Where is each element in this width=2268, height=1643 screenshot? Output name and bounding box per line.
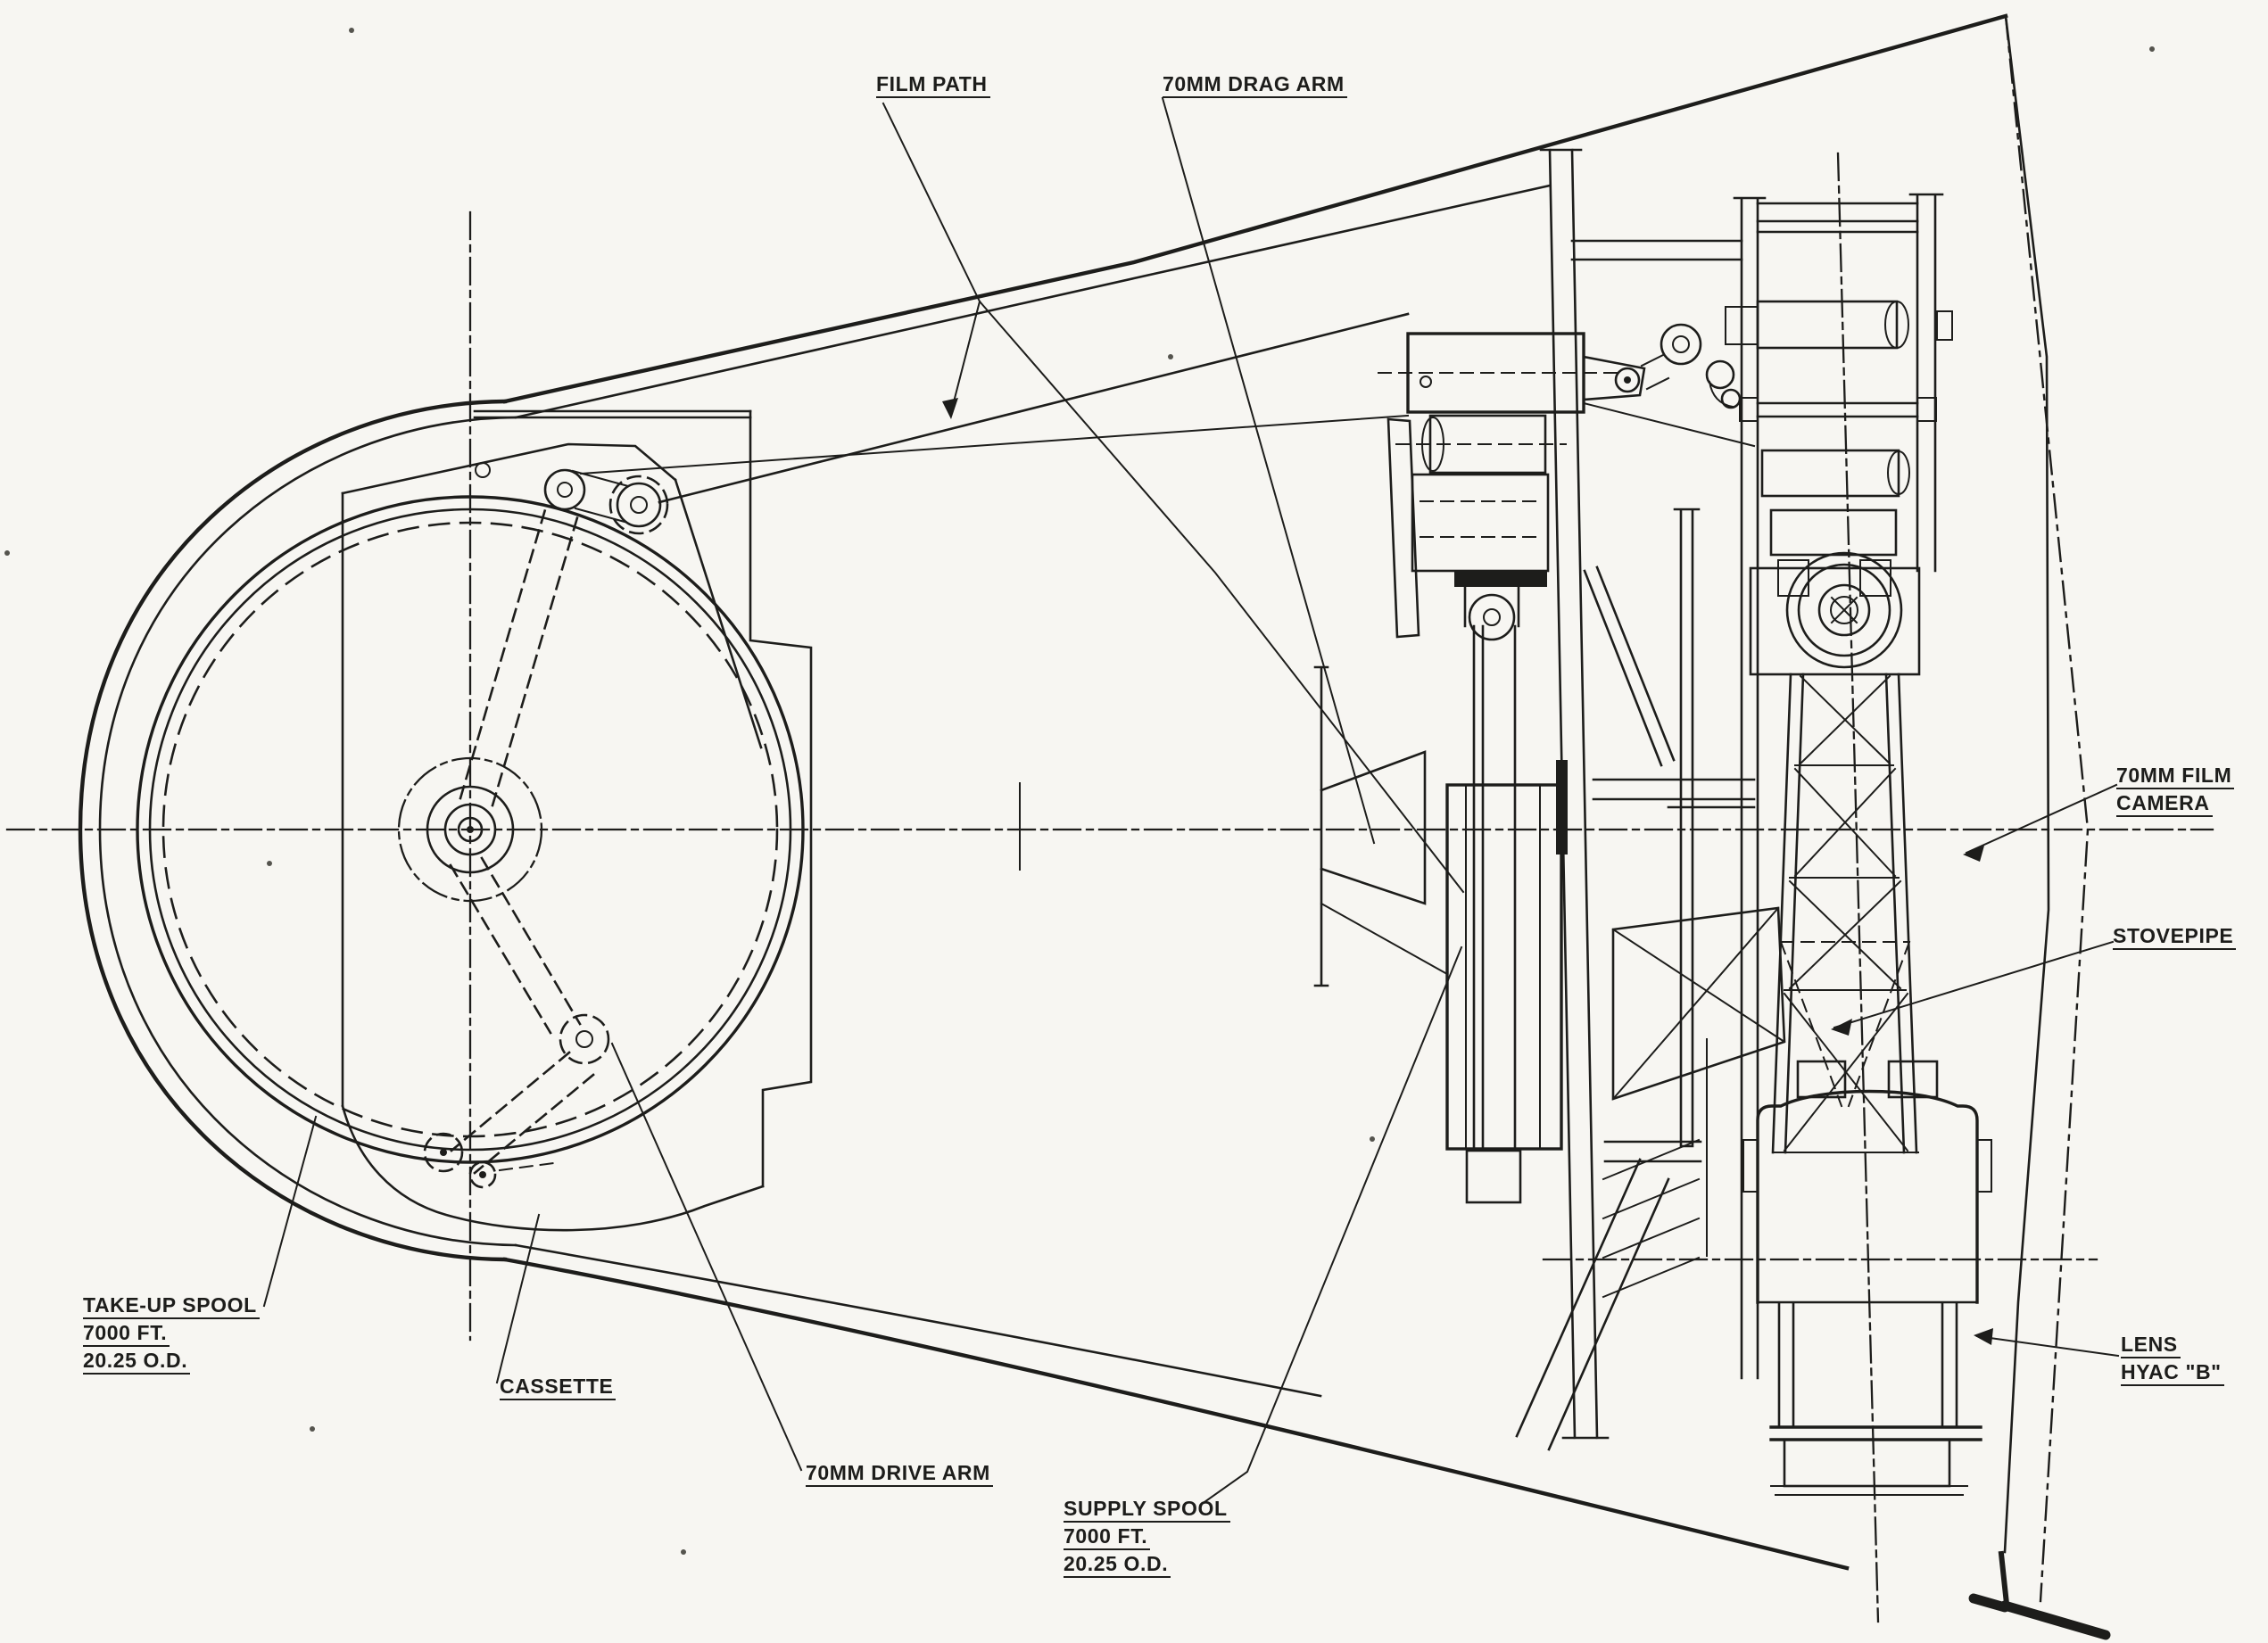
upper-cone-inner-skin — [516, 186, 1550, 417]
label-supply-spool: SUPPLY SPOOL 7000 FT. 20.25 O.D. — [1064, 1499, 1230, 1581]
roller-1-outboard — [1937, 311, 1952, 340]
lens-cell-body — [1758, 1092, 1977, 1303]
mid-pole — [1675, 509, 1699, 1146]
frame-top-beam — [1572, 241, 1742, 260]
cassette-bottom-edge — [343, 1106, 763, 1230]
label-text: 70MM DRIVE ARM — [806, 1463, 993, 1487]
upper-roller-a — [545, 470, 584, 509]
lens-side-tab-right — [1977, 1140, 1991, 1192]
label-take-up-spool: TAKE-UP SPOOL 7000 FT. 20.25 O.D. — [83, 1295, 260, 1378]
shaft-fitting-right — [1917, 398, 1936, 421]
hub-center — [467, 826, 474, 833]
film-path-arrow — [942, 398, 958, 419]
drag-arm-link-plate — [1584, 357, 1644, 400]
bracket-roller — [1469, 595, 1514, 640]
lens-leader — [1977, 1336, 2118, 1356]
drive-arm-forearm — [451, 1053, 593, 1173]
optical-horn — [1020, 667, 1447, 986]
frame-column-2 — [1734, 198, 1765, 1378]
lens-lower-block — [1784, 1440, 1949, 1486]
film-path-leader — [883, 103, 1463, 892]
label-lens-hyac-b: LENS HYAC "B" — [2121, 1334, 2224, 1390]
label-70mm-drag-arm: 70MM DRAG ARM — [1163, 74, 1347, 102]
lens-retainer-band — [1771, 1427, 1981, 1440]
lens-arrow — [1974, 1328, 1993, 1345]
clamp-bar — [1454, 572, 1547, 587]
drive-arm-leader — [612, 1044, 801, 1470]
mid-beams — [1593, 780, 1754, 807]
film-camera-arrow — [1963, 846, 1984, 862]
lens-bottom-lines — [1771, 1486, 1967, 1495]
lower-film-dash — [500, 1162, 560, 1170]
idler-roller — [1661, 325, 1701, 364]
film-camera-leader — [1966, 785, 2116, 853]
supply-housing-ribs — [1466, 785, 1540, 1149]
upper-roller-a-pin — [558, 483, 572, 497]
camera-axis-centerline — [1838, 153, 1878, 1622]
drag-arm-cylinder — [1474, 626, 1515, 1149]
lower-box-hidden-lines — [1420, 501, 1540, 537]
engineering-drawing-page: FILM PATH 70MM DRAG ARM 70MM FILM CAMERA… — [0, 0, 2268, 1643]
cylinder-foot — [1467, 1151, 1520, 1202]
drive-arm-upper — [460, 507, 578, 805]
supply-housing — [1447, 785, 1561, 1149]
side-plate — [1388, 419, 1419, 637]
label-text: TAKE-UP SPOOL — [83, 1295, 260, 1319]
vehicle-envelope — [80, 16, 2106, 1635]
label-text: 7000 FT. — [83, 1323, 170, 1347]
film-strand-to-rollers — [1584, 403, 1754, 446]
label-text: 20.25 O.D. — [1064, 1554, 1171, 1578]
aft-foot-mark-right — [2005, 1606, 2106, 1635]
horn-brace — [1321, 904, 1447, 974]
lens-barrel — [1758, 1302, 1977, 1425]
upper-roller-b-swing — [610, 476, 667, 533]
camera-frame — [1388, 150, 1942, 1438]
drag-arm-housing — [1408, 334, 1584, 412]
label-70mm-film-camera: 70MM FILM CAMERA — [2116, 765, 2234, 821]
label-text: CASSETTE — [500, 1376, 616, 1400]
lens-side-tab-left — [1743, 1140, 1758, 1192]
label-cassette: CASSETTE — [500, 1376, 616, 1404]
label-text: STOVEPIPE — [2113, 926, 2236, 950]
label-stovepipe: STOVEPIPE — [2113, 926, 2236, 954]
centerlines — [7, 16, 2213, 1622]
label-text: 20.25 O.D. — [83, 1350, 190, 1375]
plate-top-edge — [475, 411, 750, 417]
bracket-roller-pin — [1484, 609, 1500, 625]
roller-1 — [1758, 301, 1897, 348]
camera-top-plate — [1758, 203, 1917, 232]
link-bars — [1642, 355, 1668, 389]
drag-arm-pivot-hole — [1420, 376, 1431, 387]
drag-arm-lower-box — [1412, 475, 1548, 571]
camera-cross-section-diagram — [0, 0, 2268, 1643]
label-film-path: FILM PATH — [876, 74, 990, 102]
roller-shaft-beam — [1758, 403, 1917, 417]
label-text: 70MM DRAG ARM — [1163, 74, 1347, 98]
cassette-leader — [497, 1215, 539, 1383]
idler-roller-pin — [1673, 336, 1689, 352]
drive-arm-elbow-pin — [576, 1031, 592, 1047]
label-text: LENS — [2121, 1334, 2181, 1358]
upper-roller-b — [617, 483, 660, 526]
scan-specks — [4, 28, 2155, 1555]
roller-2 — [1762, 450, 1899, 496]
drive-arm-elbow — [560, 1015, 608, 1063]
label-text: HYAC "B" — [2121, 1362, 2224, 1386]
lens-assembly — [1743, 1061, 1991, 1495]
label-text: CAMERA — [2116, 793, 2213, 817]
label-text: FILM PATH — [876, 74, 990, 98]
slant-brace — [1585, 567, 1674, 765]
aft-trajectory-line — [2006, 16, 2088, 1601]
drive-wheel-spokes — [1832, 598, 1857, 623]
frame-column-3 — [1910, 194, 1942, 571]
supply-spool-housing — [1447, 760, 1568, 1149]
upper-roller-b-pin — [631, 497, 647, 513]
leader-lines — [264, 98, 2118, 1502]
lower-roller-b-pin — [479, 1171, 486, 1178]
frame-column-1 — [1541, 150, 1608, 1438]
supply-housing-seal — [1556, 760, 1568, 855]
film-strand-secondary — [581, 416, 1408, 474]
stovepipe-leader — [1834, 942, 2113, 1028]
lower-roller-a-pin — [440, 1149, 447, 1156]
label-text: 7000 FT. — [1064, 1526, 1150, 1550]
label-text: 70MM FILM — [2116, 765, 2234, 789]
lower-cone-inner-skin — [516, 1245, 1320, 1396]
aft-foot-stem — [2001, 1554, 2007, 1604]
aft-skin — [2005, 16, 2049, 1552]
roller-3 — [1771, 510, 1896, 555]
label-70mm-drive-arm: 70MM DRIVE ARM — [806, 1463, 993, 1490]
link-pivot-pin — [1624, 376, 1631, 384]
drag-arm-leader — [1163, 98, 1374, 843]
cassette-structure — [343, 411, 811, 1230]
label-text: SUPPLY SPOOL — [1064, 1499, 1230, 1523]
